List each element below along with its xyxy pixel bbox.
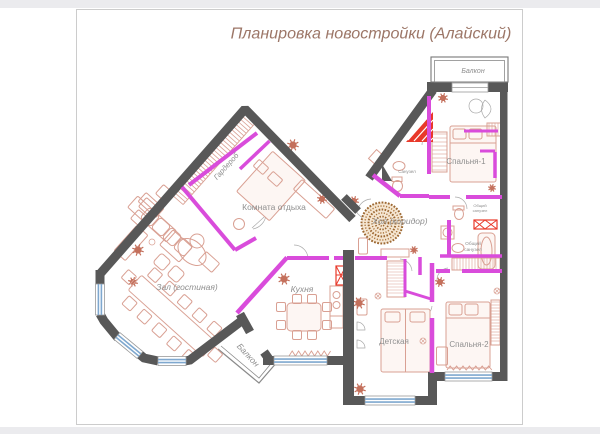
svg-text:санузел: санузел (473, 208, 488, 213)
svg-text:Спальня-2: Спальня-2 (449, 340, 489, 349)
svg-text:Детская: Детская (379, 337, 409, 346)
svg-text:Комната отдыха: Комната отдыха (242, 202, 306, 212)
svg-text:Кухня: Кухня (291, 284, 314, 294)
svg-text:Планировка новостройки (Алайск: Планировка новостройки (Алайский) (231, 25, 512, 43)
svg-text:Общий: Общий (465, 240, 481, 247)
svg-text:Санузел: Санузел (398, 169, 416, 174)
svg-text:Хол (коридор): Хол (коридор) (371, 216, 427, 226)
svg-text:санузел: санузел (464, 248, 482, 253)
svg-text:Зал (гостиная): Зал (гостиная) (156, 282, 218, 292)
svg-text:Балкон: Балкон (461, 68, 485, 75)
svg-text:Спальня-1: Спальня-1 (446, 157, 486, 166)
